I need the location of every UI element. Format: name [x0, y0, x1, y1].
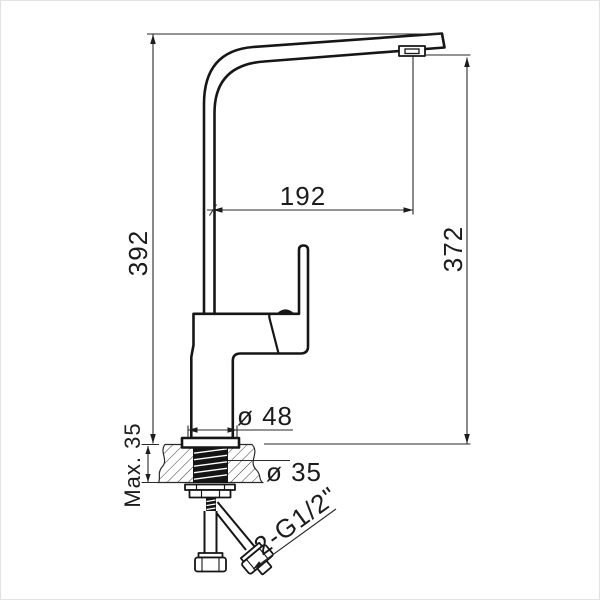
dimension-total-height: 392: [123, 35, 156, 444]
diagonal-hose-edge: [218, 502, 255, 547]
vertical-hose-fill: [205, 511, 217, 553]
faucet-dimension-diagram: 392 372 192 Max. 35: [1, 1, 600, 600]
total-height-label: 392: [123, 230, 153, 276]
spout-outline: [204, 34, 445, 315]
connection-label: 2-G1/2": [248, 480, 343, 561]
faucet-outline: [191, 34, 444, 439]
aerator-screen: [405, 49, 419, 54]
base-diameter-label: ø 48: [237, 401, 293, 431]
mounting-hardware: [185, 485, 235, 516]
vertical-hose-fitting: [195, 553, 226, 572]
technical-drawing-canvas: 392 372 192 Max. 35: [0, 0, 600, 600]
mounting-nut: [190, 490, 231, 498]
base-flange: [182, 438, 239, 448]
deck-thickness-label: Max. 35: [120, 422, 145, 507]
spout-reach-label: 192: [280, 181, 326, 211]
spout-height-label: 372: [438, 226, 468, 272]
dimension-spout-height: 372: [264, 55, 471, 444]
dimension-spout-reach: 192: [207, 57, 413, 216]
dimensions: 392 372 192 Max. 35: [120, 34, 471, 569]
dimension-connection: 2-G1/2": [248, 480, 343, 569]
shank-diameter-label: ø 35: [266, 457, 322, 487]
cartridge-dome: [278, 310, 294, 314]
